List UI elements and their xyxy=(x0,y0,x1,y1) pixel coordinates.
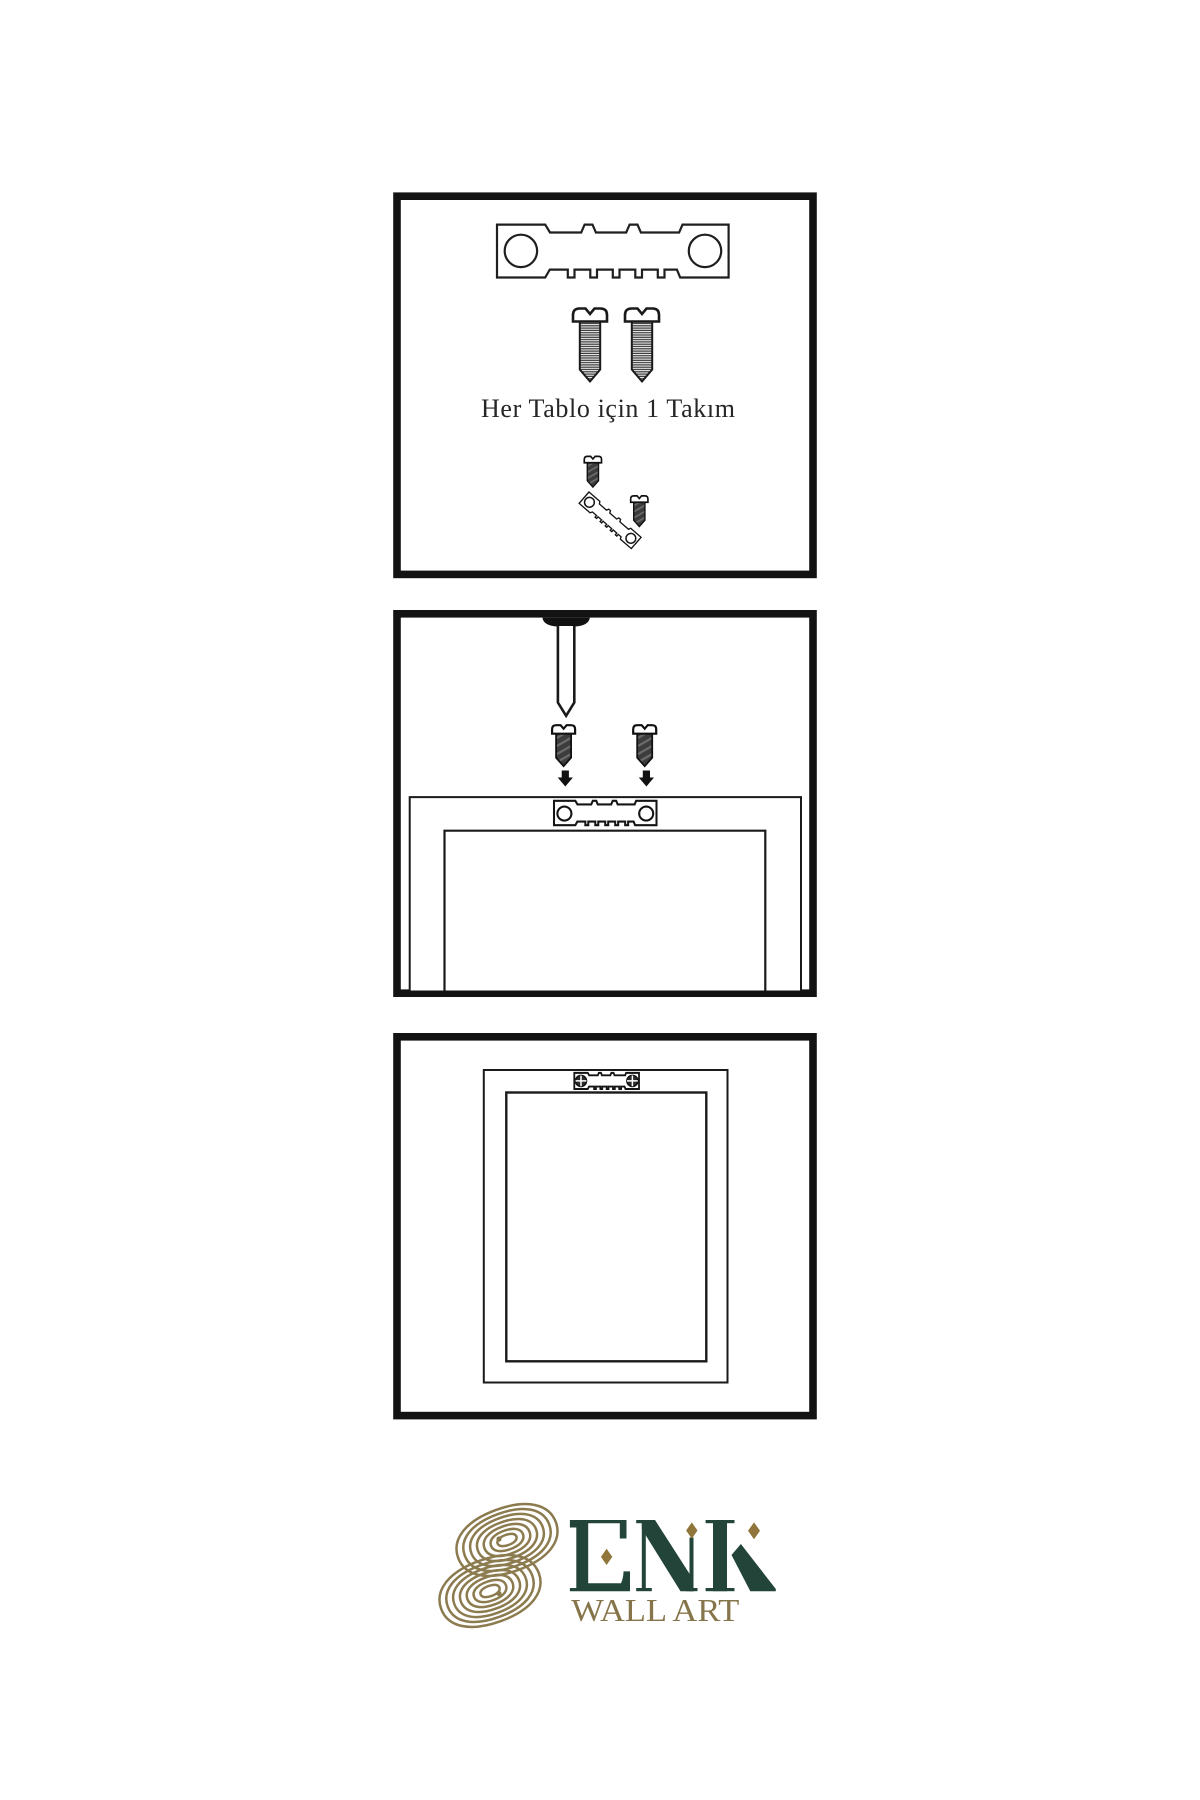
svg-text:Her Tablo için 1 Takım: Her Tablo için 1 Takım xyxy=(481,394,735,423)
svg-text:WALL ART: WALL ART xyxy=(571,1593,739,1628)
